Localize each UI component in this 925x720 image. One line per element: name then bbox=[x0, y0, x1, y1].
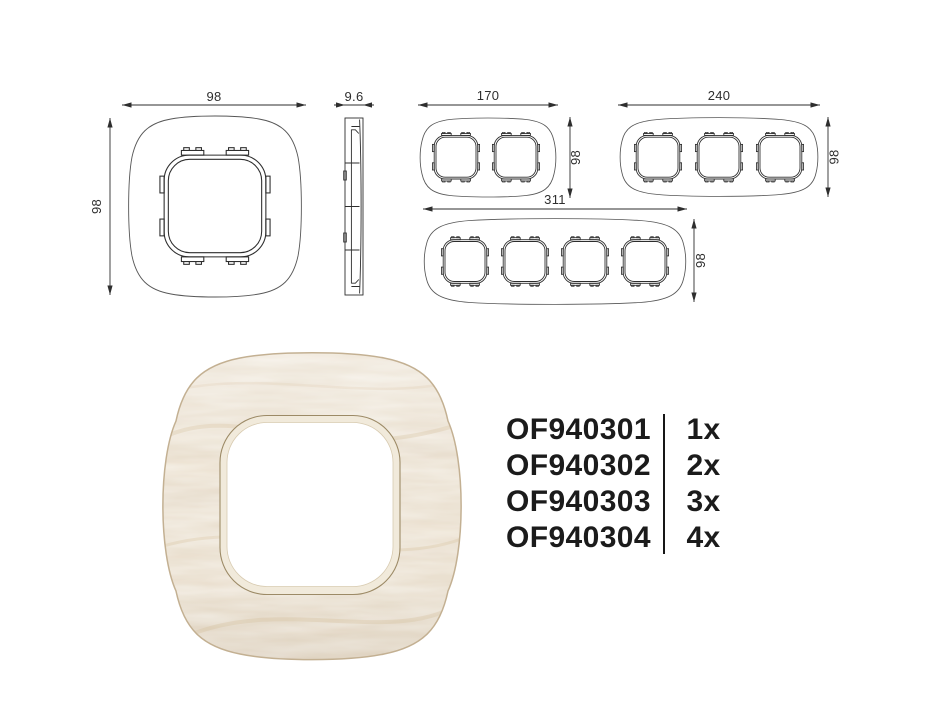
frame-outline bbox=[420, 118, 556, 197]
dim-label-width: 240 bbox=[708, 88, 731, 103]
frame-outline bbox=[620, 118, 818, 197]
dimension-arrows bbox=[418, 102, 573, 198]
dim-label-height: 98 bbox=[693, 253, 708, 268]
dim-label-width: 170 bbox=[477, 88, 500, 103]
dim-label-height: 98 bbox=[827, 149, 842, 164]
order-qty: 4x bbox=[686, 520, 720, 556]
dimension-lines bbox=[110, 105, 306, 295]
order-code: OF940302 bbox=[506, 448, 651, 484]
dim-label-width: 98 bbox=[206, 89, 221, 104]
dimension-lines bbox=[618, 105, 828, 197]
product-render-wood-frame bbox=[156, 342, 468, 668]
order-qty: 3x bbox=[686, 484, 720, 520]
order-qty: 1x bbox=[686, 412, 720, 448]
order-code: OF940304 bbox=[506, 520, 651, 556]
drawing-1gang-front: 98 98 bbox=[93, 86, 319, 308]
dim-label-width: 311 bbox=[544, 192, 566, 207]
order-code: OF940301 bbox=[506, 412, 651, 448]
drawing-4gang-front: 311 98 bbox=[410, 191, 718, 323]
module-openings bbox=[432, 132, 539, 182]
dimension-arrows bbox=[618, 102, 831, 197]
frame-outline bbox=[424, 219, 686, 305]
order-code-column: OF940301 OF940302 OF940303 OF940304 bbox=[506, 412, 651, 556]
dimension-arrows bbox=[107, 102, 306, 295]
dimension-lines bbox=[423, 209, 694, 302]
product-spec-sheet: 98 98 9.6 bbox=[0, 0, 925, 720]
frame-outline bbox=[129, 116, 302, 297]
module-opening bbox=[160, 148, 270, 265]
module-openings bbox=[634, 132, 803, 182]
order-list: OF940301 OF940302 OF940303 OF940304 1x 2… bbox=[506, 412, 721, 556]
order-list-divider bbox=[663, 414, 666, 554]
dim-label-height: 98 bbox=[89, 199, 104, 214]
dim-label-height: 98 bbox=[568, 150, 583, 165]
order-qty-column: 1x 2x 3x 4x bbox=[686, 412, 720, 556]
profile-outline bbox=[344, 118, 363, 295]
order-qty: 2x bbox=[686, 448, 720, 484]
module-openings bbox=[441, 237, 668, 287]
drawing-side-profile: 9.6 bbox=[330, 86, 378, 308]
dim-label-depth: 9.6 bbox=[345, 89, 364, 104]
order-code: OF940303 bbox=[506, 484, 651, 520]
module-cutout bbox=[227, 423, 393, 587]
